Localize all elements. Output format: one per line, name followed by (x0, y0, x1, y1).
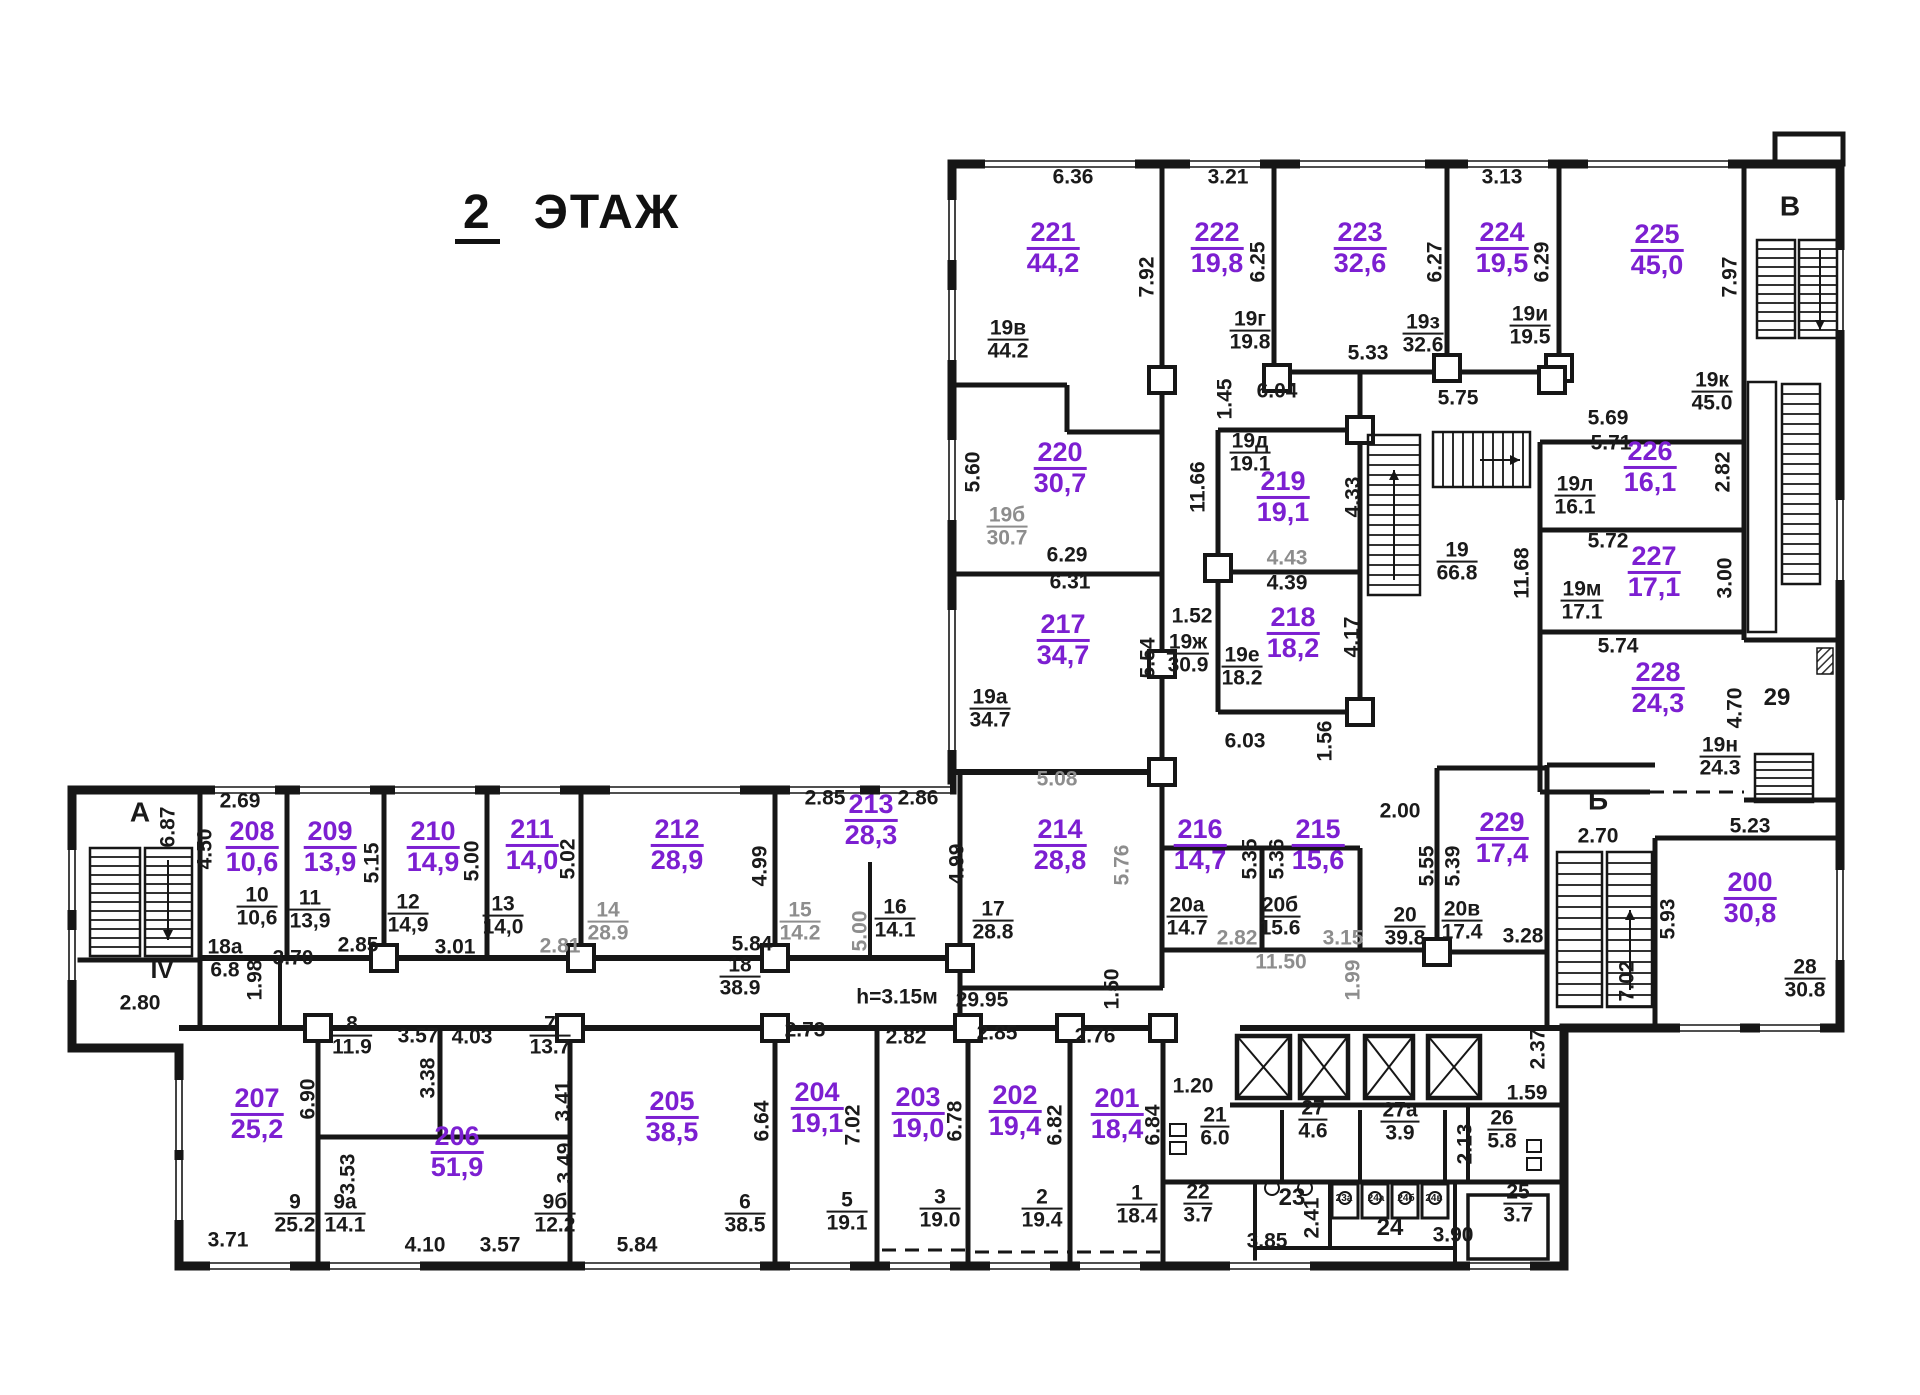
unit-number: 14 (588, 900, 629, 923)
dimension-label: 2.82 (1712, 452, 1733, 493)
room-label-214: 21428,8 (1034, 816, 1087, 874)
unit-label-20а: 20а14.7 (1167, 895, 1208, 940)
dimension-label: 2.69 (220, 790, 261, 811)
unit-area: 19.1 (1230, 454, 1271, 475)
unit-label-19е: 19е18.2 (1222, 645, 1263, 690)
unit-label-12: 1214,9 (388, 892, 429, 937)
dimension-label: 2.13 (1454, 1124, 1475, 1165)
unit-area: 14.1 (875, 920, 916, 941)
unit-area: 32.6 (1403, 335, 1444, 356)
unit-label-19в: 19в44.2 (988, 318, 1029, 363)
room-number: 212 (651, 816, 704, 847)
room-number: 214 (1034, 816, 1087, 847)
dimension-label: 7.97 (1719, 257, 1740, 298)
unit-label-2: 219.4 (1022, 1187, 1063, 1232)
unit-label-17: 1728.8 (973, 899, 1014, 944)
dimension-label: 2.85 (805, 787, 846, 808)
dimension-label: 5.39 (1442, 846, 1463, 887)
room-label-216: 21614,7 (1174, 816, 1227, 874)
dimension-label: 3.71 (208, 1229, 249, 1250)
unit-label-19к: 19к45.0 (1692, 370, 1733, 415)
unit-number: 26 (1487, 1108, 1516, 1131)
unit-label-6: 638.5 (725, 1192, 766, 1237)
room-number: 200 (1724, 869, 1777, 900)
room-area: 51,9 (431, 1154, 484, 1182)
unit-area: 39.8 (1385, 928, 1426, 949)
dimension-label: 29.95 (956, 989, 1009, 1010)
dimension-label: 5.00 (849, 911, 870, 952)
dimension-label: 3.90 (1433, 1224, 1474, 1245)
unit-number: 19м (1561, 579, 1604, 602)
unit-label-19м: 19м17.1 (1561, 579, 1604, 624)
room-area: 38,5 (646, 1119, 699, 1147)
room-label-202: 20219,4 (989, 1082, 1042, 1140)
dimension-label: 4.50 (194, 829, 215, 870)
unit-label-20: 2039.8 (1385, 905, 1426, 950)
unit-number: 2 (1022, 1187, 1063, 1210)
room-label-215: 21515,6 (1292, 816, 1345, 874)
room-number: 221 (1027, 219, 1080, 250)
unit-label-19а: 19а34.7 (970, 687, 1011, 732)
room-number: 217 (1037, 611, 1090, 642)
unit-number: 20 (1385, 905, 1426, 928)
unit-area: 4.6 (1298, 1121, 1327, 1142)
dimension-label: 6.25 (1247, 242, 1268, 283)
room-label-212: 21228,9 (651, 816, 704, 874)
unit-area: 17.4 (1442, 922, 1483, 943)
unit-label-18: 1838.9 (720, 955, 761, 1000)
unit-area: 30.8 (1785, 980, 1826, 1001)
dimension-label: 2.73 (785, 1019, 826, 1040)
room-area: 28,9 (651, 847, 704, 875)
dimension-label: 5.08 (1037, 768, 1078, 789)
zone-mark-А: А (130, 799, 150, 828)
room-number: 226 (1624, 438, 1677, 469)
room-area: 30,7 (1034, 470, 1087, 498)
room-area: 18,4 (1091, 1116, 1144, 1144)
unit-area: 19.0 (920, 1210, 961, 1231)
unit-label-5: 519.1 (827, 1190, 868, 1235)
unit-area: 11.9 (332, 1037, 372, 1058)
unit-number: 12 (388, 892, 429, 915)
unit-label-27а: 27а3.9 (1380, 1100, 1419, 1145)
room-area: 19,0 (892, 1115, 945, 1143)
unit-label-28: 2830.8 (1785, 957, 1826, 1002)
room-area: 19,1 (1257, 499, 1310, 527)
room-area: 16,1 (1624, 469, 1677, 497)
unit-area: 6.8 (205, 960, 244, 981)
dimension-label: 5.76 (1111, 845, 1132, 886)
unit-number: 9 (275, 1192, 316, 1215)
room-label-213: 21328,3 (845, 791, 898, 849)
dimension-label: 3.70 (273, 947, 314, 968)
unit-number: 9б (535, 1192, 576, 1215)
unit-label-19л: 19л16.1 (1555, 474, 1596, 519)
dimension-label: 11.68 (1511, 547, 1532, 598)
unit-label-20в: 20в17.4 (1442, 899, 1483, 944)
unit-area: 15.6 (1260, 918, 1301, 939)
unit-area: 30.7 (987, 528, 1028, 549)
unit-number: 16 (875, 897, 916, 920)
unit-label-7: 713.7 (530, 1014, 571, 1059)
room-area: 28,8 (1034, 847, 1087, 875)
dimension-label: 5.93 (1657, 899, 1678, 940)
room-area: 30,8 (1724, 900, 1777, 928)
zone-mark-24а: 24а (1368, 1194, 1385, 1204)
dimension-label: 3.57 (398, 1025, 439, 1046)
unit-area: 24.3 (1700, 758, 1741, 779)
unit-number: 27 (1298, 1098, 1327, 1121)
room-area: 10,6 (226, 849, 279, 877)
unit-area: 14,9 (388, 915, 429, 936)
room-number: 229 (1476, 809, 1529, 840)
room-number: 211 (506, 816, 559, 847)
room-label-208: 20810,6 (226, 818, 279, 876)
dimension-label: 5.23 (1730, 815, 1771, 836)
unit-number: 7 (530, 1014, 571, 1037)
room-area: 19,4 (989, 1113, 1042, 1141)
unit-number: 9а (325, 1192, 366, 1215)
room-number: 209 (304, 818, 357, 849)
room-number: 208 (226, 818, 279, 849)
dimension-label: 4.03 (452, 1026, 493, 1047)
dimension-label: 11.66 (1187, 461, 1208, 512)
unit-number: 20в (1442, 899, 1483, 922)
dimension-label: 1.20 (1173, 1075, 1214, 1096)
dimension-label: 3.38 (417, 1058, 438, 1099)
dimension-label: 1.50 (1101, 969, 1122, 1010)
unit-number: 19л (1555, 474, 1596, 497)
unit-number: 17 (973, 899, 1014, 922)
dimension-label: 1.52 (1172, 605, 1213, 626)
unit-area: 13,9 (290, 911, 331, 932)
dimension-label: 4.99 (946, 844, 967, 885)
room-number: 202 (989, 1082, 1042, 1113)
unit-number: 19а (970, 687, 1011, 710)
room-area: 18,2 (1267, 635, 1320, 663)
unit-label-22: 223.7 (1183, 1182, 1212, 1227)
unit-area: 38.5 (725, 1215, 766, 1236)
dimension-label: 2.82 (886, 1026, 927, 1047)
dimension-label: 5.74 (1598, 635, 1639, 656)
dimension-label: 3.41 (552, 1081, 573, 1122)
unit-number: 3 (920, 1187, 961, 1210)
room-number: 222 (1191, 219, 1244, 250)
zone-mark-В: В (1780, 193, 1800, 222)
unit-label-13: 1314,0 (483, 894, 524, 939)
unit-number: 18а (205, 937, 244, 960)
unit-area: 3.7 (1183, 1205, 1212, 1226)
unit-label-16: 1614.1 (875, 897, 916, 942)
room-label-206: 20651,9 (431, 1123, 484, 1181)
room-area: 19,8 (1191, 250, 1244, 278)
room-label-217: 21734,7 (1037, 611, 1090, 669)
room-label-222: 22219,8 (1191, 219, 1244, 277)
unit-label-19ж: 19ж30.9 (1167, 632, 1209, 677)
dimension-label: 7.02 (1616, 961, 1637, 1002)
unit-label-20б: 20б15.6 (1260, 895, 1301, 940)
room-label-211: 21114,0 (506, 816, 559, 874)
room-label-225: 22545,0 (1631, 221, 1684, 279)
dimension-label: 3.15 (1323, 927, 1364, 948)
zone-mark-Б: Б (1588, 787, 1608, 816)
room-label-219: 21919,1 (1257, 468, 1310, 526)
dimension-label: 6.31 (1050, 571, 1091, 592)
unit-label-19б: 19б30.7 (987, 505, 1028, 550)
dimension-label: 4.39 (1267, 572, 1308, 593)
unit-number: 20б (1260, 895, 1301, 918)
unit-area: 19.1 (827, 1213, 868, 1234)
dimension-label: 6.82 (1044, 1105, 1065, 1146)
room-label-209: 20913,9 (304, 818, 357, 876)
unit-number: 5 (827, 1190, 868, 1213)
room-number: 206 (431, 1123, 484, 1154)
unit-area: 30.9 (1167, 655, 1209, 676)
unit-number: 8 (332, 1014, 372, 1037)
unit-number: 19и (1510, 304, 1551, 327)
room-area: 45,0 (1631, 252, 1684, 280)
room-label-200: 20030,8 (1724, 869, 1777, 927)
room-number: 207 (231, 1085, 284, 1116)
unit-area: 19.4 (1022, 1210, 1063, 1231)
room-number: 204 (791, 1079, 844, 1110)
dimension-label: 6.27 (1424, 242, 1445, 283)
room-label-201: 20118,4 (1091, 1085, 1144, 1143)
dimension-label: 4.99 (749, 846, 770, 887)
dimension-label: 5.69 (1588, 407, 1629, 428)
dimension-label: 4.43 (1267, 547, 1308, 568)
room-area: 17,1 (1628, 574, 1681, 602)
room-area: 19,5 (1476, 250, 1529, 278)
dimension-label: 4.17 (1341, 617, 1362, 658)
dimension-label: 6.03 (1225, 730, 1266, 751)
room-area: 32,6 (1334, 250, 1387, 278)
unit-label-19и: 19и19.5 (1510, 304, 1551, 349)
room-label-221: 22144,2 (1027, 219, 1080, 277)
dimension-label: 6.29 (1531, 242, 1552, 283)
dimension-label: 2.80 (120, 992, 161, 1013)
dimension-label: 3.49 (554, 1143, 575, 1184)
unit-label-8: 811.9 (332, 1014, 372, 1059)
dimension-label: 2.37 (1527, 1029, 1548, 1070)
dimension-label: 5.72 (1588, 530, 1629, 551)
room-label-229: 22917,4 (1476, 809, 1529, 867)
dimension-label: 5.75 (1438, 387, 1479, 408)
dimension-label: 3.00 (1714, 558, 1735, 599)
room-area: 14,0 (506, 847, 559, 875)
room-area: 44,2 (1027, 250, 1080, 278)
floor-plan: 22144,222219,822332,622419,522545,022030… (0, 0, 1920, 1395)
unit-label-19з: 19з32.6 (1403, 312, 1444, 357)
dimension-label: 2.85 (338, 934, 379, 955)
dimension-label: 3.21 (1208, 166, 1249, 187)
dimension-label: 6.29 (1047, 544, 1088, 565)
dimension-label: 6.90 (297, 1079, 318, 1120)
unit-number: 19н (1700, 735, 1741, 758)
unit-label-18а: 18а6.8 (205, 937, 244, 982)
unit-number: 22 (1183, 1182, 1212, 1205)
unit-area: 25.2 (275, 1215, 316, 1236)
dimension-label: 5.02 (557, 839, 578, 880)
unit-number: 19б (987, 505, 1028, 528)
room-number: 220 (1034, 439, 1087, 470)
labels-layer: 22144,222219,822332,622419,522545,022030… (0, 0, 1920, 1395)
dimension-label: h=3.15м (856, 986, 938, 1007)
room-number: 205 (646, 1088, 699, 1119)
dimension-label: 4.33 (1342, 477, 1363, 518)
room-number: 215 (1292, 816, 1345, 847)
unit-label-19: 1966.8 (1437, 540, 1478, 585)
unit-area: 14.2 (780, 923, 821, 944)
unit-label-19г: 19г19.8 (1230, 309, 1271, 354)
room-label-218: 21818,2 (1267, 604, 1320, 662)
room-label-207: 20725,2 (231, 1085, 284, 1143)
dimension-label: 6.84 (1142, 1105, 1163, 1146)
dimension-label: 6.04 (1257, 380, 1298, 401)
room-area: 14,7 (1174, 847, 1227, 875)
unit-area: 45.0 (1692, 393, 1733, 414)
unit-label-1: 118.4 (1117, 1183, 1158, 1228)
room-area: 13,9 (304, 849, 357, 877)
room-number: 228 (1632, 659, 1685, 690)
unit-area: 18.2 (1222, 668, 1263, 689)
dimension-label: 5.35 (1239, 839, 1260, 880)
unit-label-19н: 19н24.3 (1700, 735, 1741, 780)
unit-area: 44.2 (988, 341, 1029, 362)
unit-area: 6.0 (1200, 1128, 1229, 1149)
room-label-227: 22717,1 (1628, 543, 1681, 601)
unit-label-9а: 9а14.1 (325, 1192, 366, 1237)
room-number: 210 (407, 818, 460, 849)
dimension-label: 5.60 (962, 452, 983, 493)
dimension-label: 7.02 (842, 1105, 863, 1146)
unit-number: 18 (720, 955, 761, 978)
unit-number: 19з (1403, 312, 1444, 335)
page-title: 2ЭТАЖ (455, 185, 680, 240)
room-area: 19,1 (791, 1110, 844, 1138)
dimension-label: 3.53 (337, 1154, 358, 1195)
zone-mark-24в: 24в (1425, 1194, 1442, 1204)
room-number: 227 (1628, 543, 1681, 574)
dimension-label: 3.85 (1247, 1230, 1288, 1251)
dimension-label: 2.85 (977, 1022, 1018, 1043)
dimension-label: 6.87 (157, 807, 178, 848)
unit-label-10: 1010,6 (237, 885, 278, 930)
room-number: 203 (892, 1084, 945, 1115)
dimension-label: 5.84 (732, 933, 773, 954)
dimension-label: 5.84 (617, 1234, 658, 1255)
dimension-label: 6.64 (751, 1101, 772, 1142)
dimension-label: 2.81 (540, 935, 581, 956)
dimension-label: 5.55 (1416, 846, 1437, 887)
room-label-204: 20419,1 (791, 1079, 844, 1137)
unit-area: 19.5 (1510, 327, 1551, 348)
floor-word: ЭТАЖ (534, 186, 681, 239)
unit-number: 19е (1222, 645, 1263, 668)
unit-number: 19 (1437, 540, 1478, 563)
room-label-210: 21014,9 (407, 818, 460, 876)
dimension-label: 2.82 (1217, 927, 1258, 948)
room-number: 213 (845, 791, 898, 822)
unit-area: 17.1 (1561, 602, 1604, 623)
dimension-label: 5.54 (1137, 638, 1158, 679)
unit-number: 1 (1117, 1183, 1158, 1206)
unit-label-26: 265.8 (1487, 1108, 1516, 1153)
room-area: 34,7 (1037, 642, 1090, 670)
unit-label-9б: 9б12.2 (535, 1192, 576, 1237)
unit-area: 3.7 (1503, 1205, 1532, 1226)
room-number: 218 (1267, 604, 1320, 635)
dimension-label: 1.56 (1314, 721, 1335, 762)
floor-number: 2 (455, 186, 500, 244)
room-area: 28,3 (845, 822, 898, 850)
unit-number: 15 (780, 900, 821, 923)
zone-mark-24б: 24б (1397, 1194, 1414, 1204)
unit-area: 16.1 (1555, 497, 1596, 518)
unit-area: 18.4 (1117, 1206, 1158, 1227)
dimension-label: 1.45 (1214, 379, 1235, 420)
room-area: 14,9 (407, 849, 460, 877)
room-area: 15,6 (1292, 847, 1345, 875)
unit-number: 28 (1785, 957, 1826, 980)
unit-number: 19г (1230, 309, 1271, 332)
dimension-label: 5.71 (1591, 432, 1632, 453)
unit-label-9: 925.2 (275, 1192, 316, 1237)
unit-number: 20а (1167, 895, 1208, 918)
dimension-label: 2.00 (1380, 800, 1421, 821)
unit-label-15: 1514.2 (780, 900, 821, 945)
dimension-label: 1.59 (1507, 1082, 1548, 1103)
unit-label-3: 319.0 (920, 1187, 961, 1232)
room-label-226: 22616,1 (1624, 438, 1677, 496)
dimension-label: 3.28 (1503, 925, 1544, 946)
unit-number: 25 (1503, 1182, 1532, 1205)
dimension-label: 3.01 (435, 936, 476, 957)
room-area: 17,4 (1476, 840, 1529, 868)
unit-number: 11 (290, 888, 331, 911)
unit-label-27: 274.6 (1298, 1098, 1327, 1143)
dimension-label: 5.00 (461, 841, 482, 882)
dimension-label: 5.15 (361, 843, 382, 884)
dimension-label: 2.86 (898, 787, 939, 808)
room-number: 224 (1476, 219, 1529, 250)
unit-area: 10,6 (237, 908, 278, 929)
unit-number: 19д (1230, 431, 1271, 454)
unit-number: 21 (1200, 1105, 1229, 1128)
unit-area: 14,0 (483, 917, 524, 938)
dimension-label: 3.13 (1482, 166, 1523, 187)
unit-area: 19.8 (1230, 332, 1271, 353)
unit-number: 19к (1692, 370, 1733, 393)
room-number: 201 (1091, 1085, 1144, 1116)
zone-mark-IV: IV (151, 959, 174, 983)
room-number: 223 (1334, 219, 1387, 250)
unit-area: 14.1 (325, 1215, 366, 1236)
dimension-label: 2.76 (1075, 1025, 1116, 1046)
unit-area: 66.8 (1437, 563, 1478, 584)
dimension-label: 7.92 (1136, 257, 1157, 298)
unit-area: 28.9 (588, 923, 629, 944)
dimension-label: 1.99 (1342, 960, 1363, 1001)
zone-mark-24: 24 (1377, 1216, 1404, 1240)
unit-number: 13 (483, 894, 524, 917)
room-label-205: 20538,5 (646, 1088, 699, 1146)
dimension-label: 3.57 (480, 1234, 521, 1255)
room-area: 24,3 (1632, 690, 1685, 718)
room-label-220: 22030,7 (1034, 439, 1087, 497)
unit-area: 13.7 (530, 1037, 571, 1058)
unit-label-19д: 19д19.1 (1230, 431, 1271, 476)
